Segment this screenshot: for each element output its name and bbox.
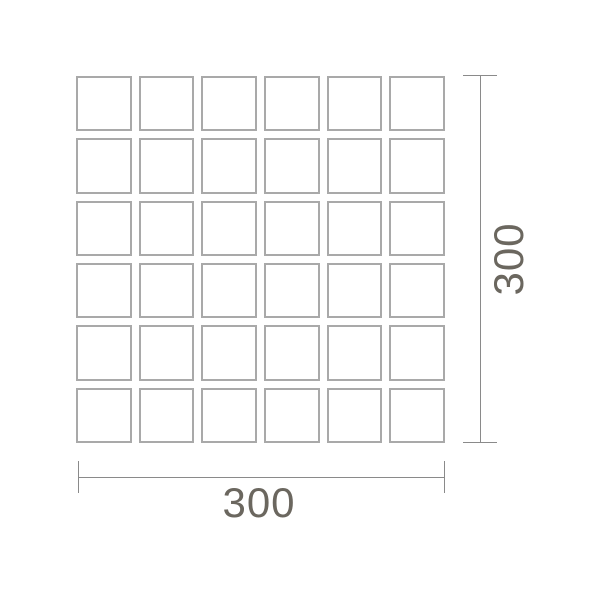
tile: [76, 325, 132, 380]
tile: [389, 263, 445, 318]
tile: [264, 263, 320, 318]
width-dimension-tick-right: [444, 461, 445, 493]
tile: [201, 76, 257, 131]
tile: [139, 201, 195, 256]
tile: [327, 201, 383, 256]
tile: [327, 325, 383, 380]
tile: [76, 388, 132, 443]
tile: [76, 201, 132, 256]
height-dimension-line: [480, 75, 481, 443]
tile: [139, 138, 195, 193]
width-dimension-line: [78, 477, 444, 478]
tile: [264, 138, 320, 193]
tile: [201, 201, 257, 256]
width-dimension-tick-left: [78, 461, 79, 493]
tile: [76, 138, 132, 193]
tile: [76, 76, 132, 131]
tile: [264, 388, 320, 443]
tile: [201, 388, 257, 443]
tile: [264, 201, 320, 256]
tile: [201, 325, 257, 380]
tile: [139, 76, 195, 131]
width-dimension-label: 300: [222, 479, 295, 527]
tile: [201, 138, 257, 193]
tile: [389, 138, 445, 193]
tile: [327, 138, 383, 193]
tile: [139, 263, 195, 318]
tile: [389, 201, 445, 256]
tile: [76, 263, 132, 318]
tile: [264, 325, 320, 380]
tile: [327, 263, 383, 318]
drawing-canvas: 300 300: [0, 0, 600, 600]
tile: [327, 388, 383, 443]
height-dimension-tick-top: [463, 75, 497, 76]
tile-grid: [76, 76, 445, 443]
height-dimension-label: 300: [485, 222, 533, 295]
tile: [139, 388, 195, 443]
tile: [389, 388, 445, 443]
tile: [201, 263, 257, 318]
tile: [389, 76, 445, 131]
tile: [327, 76, 383, 131]
height-dimension-tick-bottom: [463, 442, 497, 443]
tile: [139, 325, 195, 380]
tile: [264, 76, 320, 131]
tile: [389, 325, 445, 380]
